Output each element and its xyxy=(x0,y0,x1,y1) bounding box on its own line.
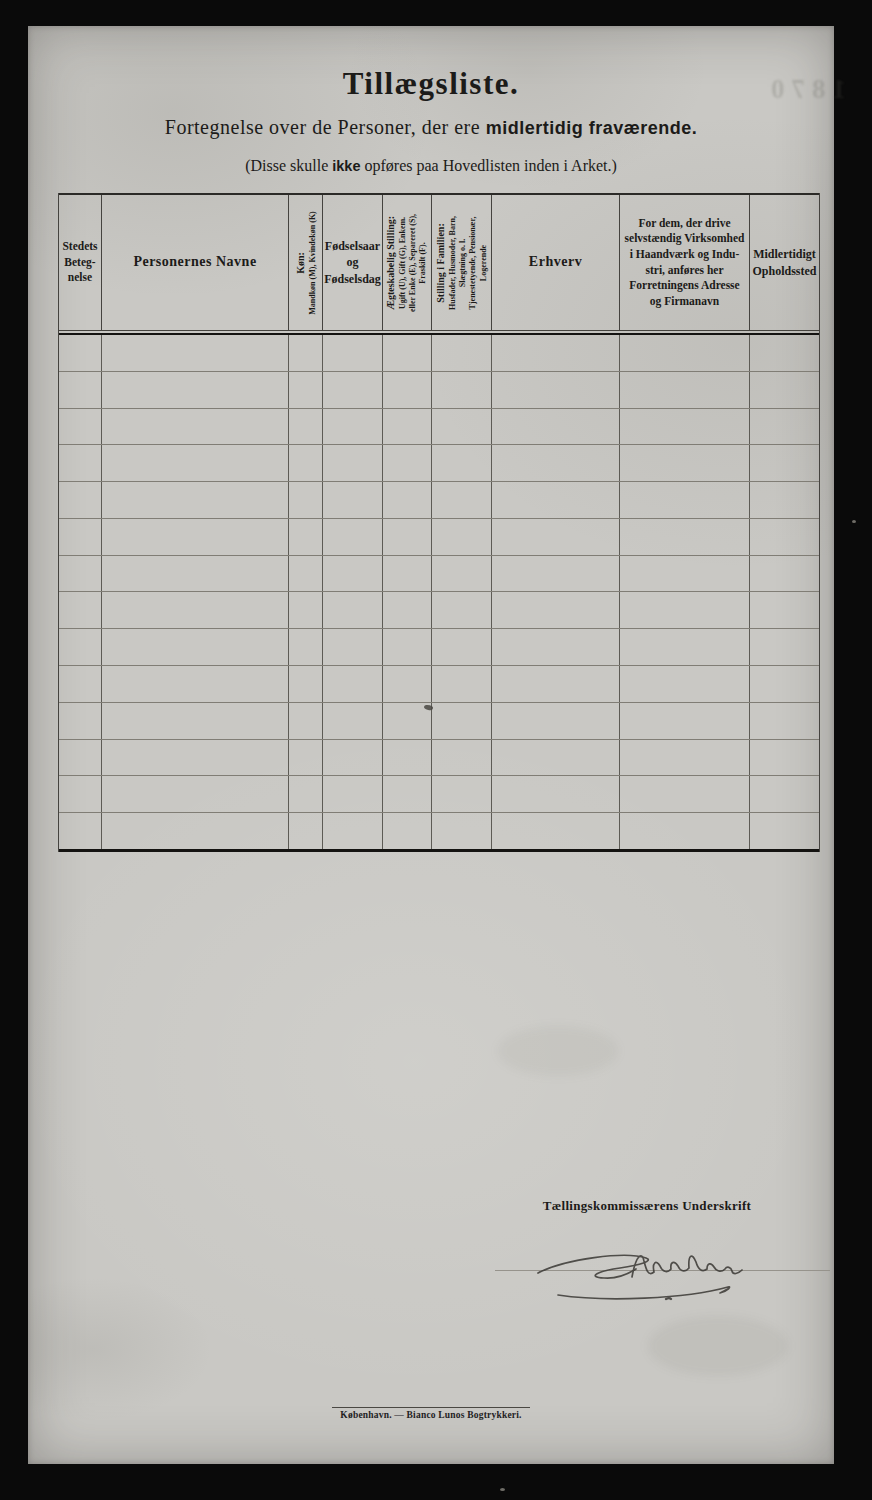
table-cell-personernes-navne xyxy=(101,556,288,592)
col-header-erhverv: Erhverv xyxy=(491,195,619,330)
table-cell-fodselsaar-og-fodselsdag xyxy=(322,409,382,445)
table-cell-aegteskabelig-stilling xyxy=(382,740,431,776)
table-cell-erhverv xyxy=(491,813,619,849)
table-cell-midlertidigt-opholdssted xyxy=(749,740,819,776)
table-cell-erhverv xyxy=(491,592,619,628)
table-cell-fodselsaar-og-fodselsdag xyxy=(322,629,382,665)
table-cell-aegteskabelig-stilling xyxy=(382,445,431,481)
census-table: Stedets Beteg- nelse Personernes Navne K… xyxy=(58,193,820,852)
table-cell-stilling-i-familien xyxy=(431,592,491,628)
table-cell-stedets-betegnelse xyxy=(59,776,101,812)
table-row xyxy=(59,372,819,409)
table-cell-fodselsaar-og-fodselsdag xyxy=(322,813,382,849)
table-cell-personernes-navne xyxy=(101,740,288,776)
table-cell-fodselsaar-og-fodselsdag xyxy=(322,445,382,481)
table-cell-aegteskabelig-stilling xyxy=(382,409,431,445)
table-cell-kon xyxy=(288,592,322,628)
table-cell-personernes-navne xyxy=(101,813,288,849)
table-row xyxy=(59,813,819,849)
table-cell-erhverv xyxy=(491,445,619,481)
table-cell-personernes-navne xyxy=(101,592,288,628)
table-cell-stedets-betegnelse xyxy=(59,445,101,481)
table-row xyxy=(59,776,819,813)
table-cell-personernes-navne xyxy=(101,703,288,739)
table-cell-erhverv xyxy=(491,372,619,408)
table-cell-aegteskabelig-stilling xyxy=(382,813,431,849)
table-cell-virksomhed-adresse xyxy=(619,666,749,702)
table-cell-virksomhed-adresse xyxy=(619,372,749,408)
table-cell-erhverv xyxy=(491,482,619,518)
table-cell-fodselsaar-og-fodselsdag xyxy=(322,592,382,628)
table-cell-stedets-betegnelse xyxy=(59,335,101,371)
table-row xyxy=(59,592,819,629)
table-cell-personernes-navne xyxy=(101,409,288,445)
table-cell-stedets-betegnelse xyxy=(59,592,101,628)
table-cell-virksomhed-adresse xyxy=(619,335,749,371)
col-header-midlertidigt-opholdssted: Midlertidigt Opholdssted xyxy=(749,195,819,330)
table-cell-erhverv xyxy=(491,740,619,776)
table-cell-kon xyxy=(288,776,322,812)
table-cell-virksomhed-adresse xyxy=(619,409,749,445)
table-header-row: Stedets Beteg- nelse Personernes Navne K… xyxy=(59,193,819,330)
table-cell-kon xyxy=(288,703,322,739)
rotated-label: Stilling i Familien: Husfader, Husmoder,… xyxy=(434,188,488,338)
table-cell-erhverv xyxy=(491,666,619,702)
table-row xyxy=(59,445,819,482)
table-cell-midlertidigt-opholdssted xyxy=(749,409,819,445)
signature-handwriting xyxy=(520,1225,750,1315)
table-cell-midlertidigt-opholdssted xyxy=(749,813,819,849)
table-cell-stilling-i-familien xyxy=(431,519,491,555)
table-body xyxy=(59,335,819,852)
table-cell-fodselsaar-og-fodselsdag xyxy=(322,372,382,408)
table-cell-virksomhed-adresse xyxy=(619,813,749,849)
table-row xyxy=(59,666,819,703)
table-cell-stilling-i-familien xyxy=(431,666,491,702)
table-cell-stedets-betegnelse xyxy=(59,629,101,665)
table-cell-aegteskabelig-stilling xyxy=(382,482,431,518)
note-emphasis: ikke xyxy=(332,158,360,174)
table-cell-aegteskabelig-stilling xyxy=(382,335,431,371)
table-cell-personernes-navne xyxy=(101,335,288,371)
table-cell-midlertidigt-opholdssted xyxy=(749,482,819,518)
col-header-virksomhed-adresse: For dem, der drive selvstændig Virksomhe… xyxy=(619,195,749,330)
table-cell-stilling-i-familien xyxy=(431,703,491,739)
table-cell-kon xyxy=(288,335,322,371)
col-header-fodselsaar: Fødselsaar og Fødselsdag xyxy=(322,195,382,330)
table-cell-erhverv xyxy=(491,335,619,371)
imprint-rule xyxy=(332,1407,530,1408)
table-cell-fodselsaar-og-fodselsdag xyxy=(322,740,382,776)
table-row xyxy=(59,519,819,556)
table-cell-stedets-betegnelse xyxy=(59,519,101,555)
table-cell-midlertidigt-opholdssted xyxy=(749,629,819,665)
table-row xyxy=(59,740,819,777)
table-cell-stedets-betegnelse xyxy=(59,556,101,592)
table-cell-virksomhed-adresse xyxy=(619,629,749,665)
page-subtitle: Fortegnelse over de Personer, der ere mi… xyxy=(28,116,834,139)
scanned-page-background: { "colors": { "background": "#0a0a0a", "… xyxy=(0,0,872,1500)
table-cell-kon xyxy=(288,740,322,776)
table-cell-personernes-navne xyxy=(101,445,288,481)
table-cell-stilling-i-familien xyxy=(431,776,491,812)
table-cell-stedets-betegnelse xyxy=(59,482,101,518)
table-cell-midlertidigt-opholdssted xyxy=(749,666,819,702)
table-cell-personernes-navne xyxy=(101,519,288,555)
paper-smudge xyxy=(498,1026,618,1076)
table-cell-stilling-i-familien xyxy=(431,813,491,849)
table-cell-stedets-betegnelse xyxy=(59,703,101,739)
col-header-aegteskabelig-stilling: Ægteskabelig Stilling: Ugift (U), Gift (… xyxy=(382,195,431,330)
table-cell-kon xyxy=(288,372,322,408)
table-cell-fodselsaar-og-fodselsdag xyxy=(322,482,382,518)
col-header-stedets-betegnelse: Stedets Beteg- nelse xyxy=(59,195,101,330)
table-cell-midlertidigt-opholdssted xyxy=(749,335,819,371)
table-cell-erhverv xyxy=(491,776,619,812)
imprint-text: København. — Bianco Lunos Bogtrykkeri. xyxy=(326,1410,536,1420)
table-cell-erhverv xyxy=(491,519,619,555)
note-prefix: (Disse skulle xyxy=(245,157,328,174)
table-cell-fodselsaar-og-fodselsdag xyxy=(322,556,382,592)
table-cell-stilling-i-familien xyxy=(431,482,491,518)
table-cell-stilling-i-familien xyxy=(431,372,491,408)
subtitle-emphasis: midlertidig fraværende. xyxy=(486,118,698,138)
col-header-stilling-i-familien: Stilling i Familien: Husfader, Husmoder,… xyxy=(431,195,491,330)
table-cell-kon xyxy=(288,519,322,555)
table-cell-stilling-i-familien xyxy=(431,556,491,592)
signature-caption: Tællingskommissærens Underskrift xyxy=(497,1198,797,1214)
table-cell-personernes-navne xyxy=(101,666,288,702)
table-cell-midlertidigt-opholdssted xyxy=(749,445,819,481)
table-cell-kon xyxy=(288,445,322,481)
paper: 1870 Tillægsliste. Fortegnelse over de P… xyxy=(28,26,834,1464)
table-cell-stedets-betegnelse xyxy=(59,666,101,702)
table-cell-stilling-i-familien xyxy=(431,629,491,665)
col-header-kon: Køn: Mandkøn (M), Kvindekøn (K) xyxy=(288,195,322,330)
table-cell-personernes-navne xyxy=(101,372,288,408)
table-cell-virksomhed-adresse xyxy=(619,776,749,812)
table-cell-kon xyxy=(288,409,322,445)
table-cell-aegteskabelig-stilling xyxy=(382,372,431,408)
table-cell-fodselsaar-og-fodselsdag xyxy=(322,519,382,555)
table-cell-fodselsaar-og-fodselsdag xyxy=(322,703,382,739)
table-cell-fodselsaar-og-fodselsdag xyxy=(322,335,382,371)
table-cell-aegteskabelig-stilling xyxy=(382,519,431,555)
table-cell-midlertidigt-opholdssted xyxy=(749,519,819,555)
subtitle-regular: Fortegnelse over de Personer, der ere xyxy=(165,116,480,138)
paper-smudge xyxy=(648,1316,788,1376)
table-cell-virksomhed-adresse xyxy=(619,703,749,739)
table-cell-stedets-betegnelse xyxy=(59,409,101,445)
table-cell-aegteskabelig-stilling xyxy=(382,776,431,812)
table-cell-virksomhed-adresse xyxy=(619,519,749,555)
table-cell-aegteskabelig-stilling xyxy=(382,666,431,702)
rotated-label: Ægteskabelig Stilling: Ugift (U), Gift (… xyxy=(385,188,429,338)
printer-imprint: København. — Bianco Lunos Bogtrykkeri. xyxy=(326,1407,536,1420)
table-cell-midlertidigt-opholdssted xyxy=(749,592,819,628)
table-cell-virksomhed-adresse xyxy=(619,556,749,592)
table-cell-erhverv xyxy=(491,556,619,592)
table-cell-midlertidigt-opholdssted xyxy=(749,372,819,408)
table-cell-midlertidigt-opholdssted xyxy=(749,703,819,739)
table-cell-midlertidigt-opholdssted xyxy=(749,776,819,812)
table-row xyxy=(59,556,819,593)
table-cell-midlertidigt-opholdssted xyxy=(749,556,819,592)
table-cell-fodselsaar-og-fodselsdag xyxy=(322,666,382,702)
table-row xyxy=(59,409,819,446)
scan-speck xyxy=(852,520,856,523)
table-cell-stilling-i-familien xyxy=(431,409,491,445)
scan-speck xyxy=(500,1488,505,1491)
table-cell-personernes-navne xyxy=(101,482,288,518)
table-cell-erhverv xyxy=(491,703,619,739)
table-cell-stilling-i-familien xyxy=(431,445,491,481)
table-cell-stedets-betegnelse xyxy=(59,372,101,408)
table-cell-virksomhed-adresse xyxy=(619,445,749,481)
table-cell-stilling-i-familien xyxy=(431,740,491,776)
rotated-label: Køn: Mandkøn (M), Kvindekøn (K) xyxy=(294,188,317,338)
table-row xyxy=(59,703,819,740)
page-note: (Disse skulle ikke opføres paa Hovedlist… xyxy=(28,157,834,175)
table-cell-erhverv xyxy=(491,629,619,665)
table-cell-aegteskabelig-stilling xyxy=(382,629,431,665)
table-row xyxy=(59,629,819,666)
table-cell-kon xyxy=(288,813,322,849)
col-header-personernes-navne: Personernes Navne xyxy=(101,195,288,330)
table-cell-erhverv xyxy=(491,409,619,445)
table-cell-virksomhed-adresse xyxy=(619,592,749,628)
table-cell-kon xyxy=(288,482,322,518)
table-row xyxy=(59,482,819,519)
table-cell-stedets-betegnelse xyxy=(59,740,101,776)
table-cell-kon xyxy=(288,629,322,665)
table-cell-aegteskabelig-stilling xyxy=(382,592,431,628)
table-cell-aegteskabelig-stilling xyxy=(382,556,431,592)
table-cell-fodselsaar-og-fodselsdag xyxy=(322,776,382,812)
page-title: Tillægsliste. xyxy=(28,66,834,102)
table-cell-virksomhed-adresse xyxy=(619,482,749,518)
table-row xyxy=(59,335,819,372)
table-cell-kon xyxy=(288,666,322,702)
table-cell-personernes-navne xyxy=(101,776,288,812)
table-cell-personernes-navne xyxy=(101,629,288,665)
table-cell-virksomhed-adresse xyxy=(619,740,749,776)
note-suffix: opføres paa Hovedlisten inden i Arket.) xyxy=(364,157,616,174)
table-cell-stedets-betegnelse xyxy=(59,813,101,849)
table-cell-stilling-i-familien xyxy=(431,335,491,371)
table-cell-kon xyxy=(288,556,322,592)
